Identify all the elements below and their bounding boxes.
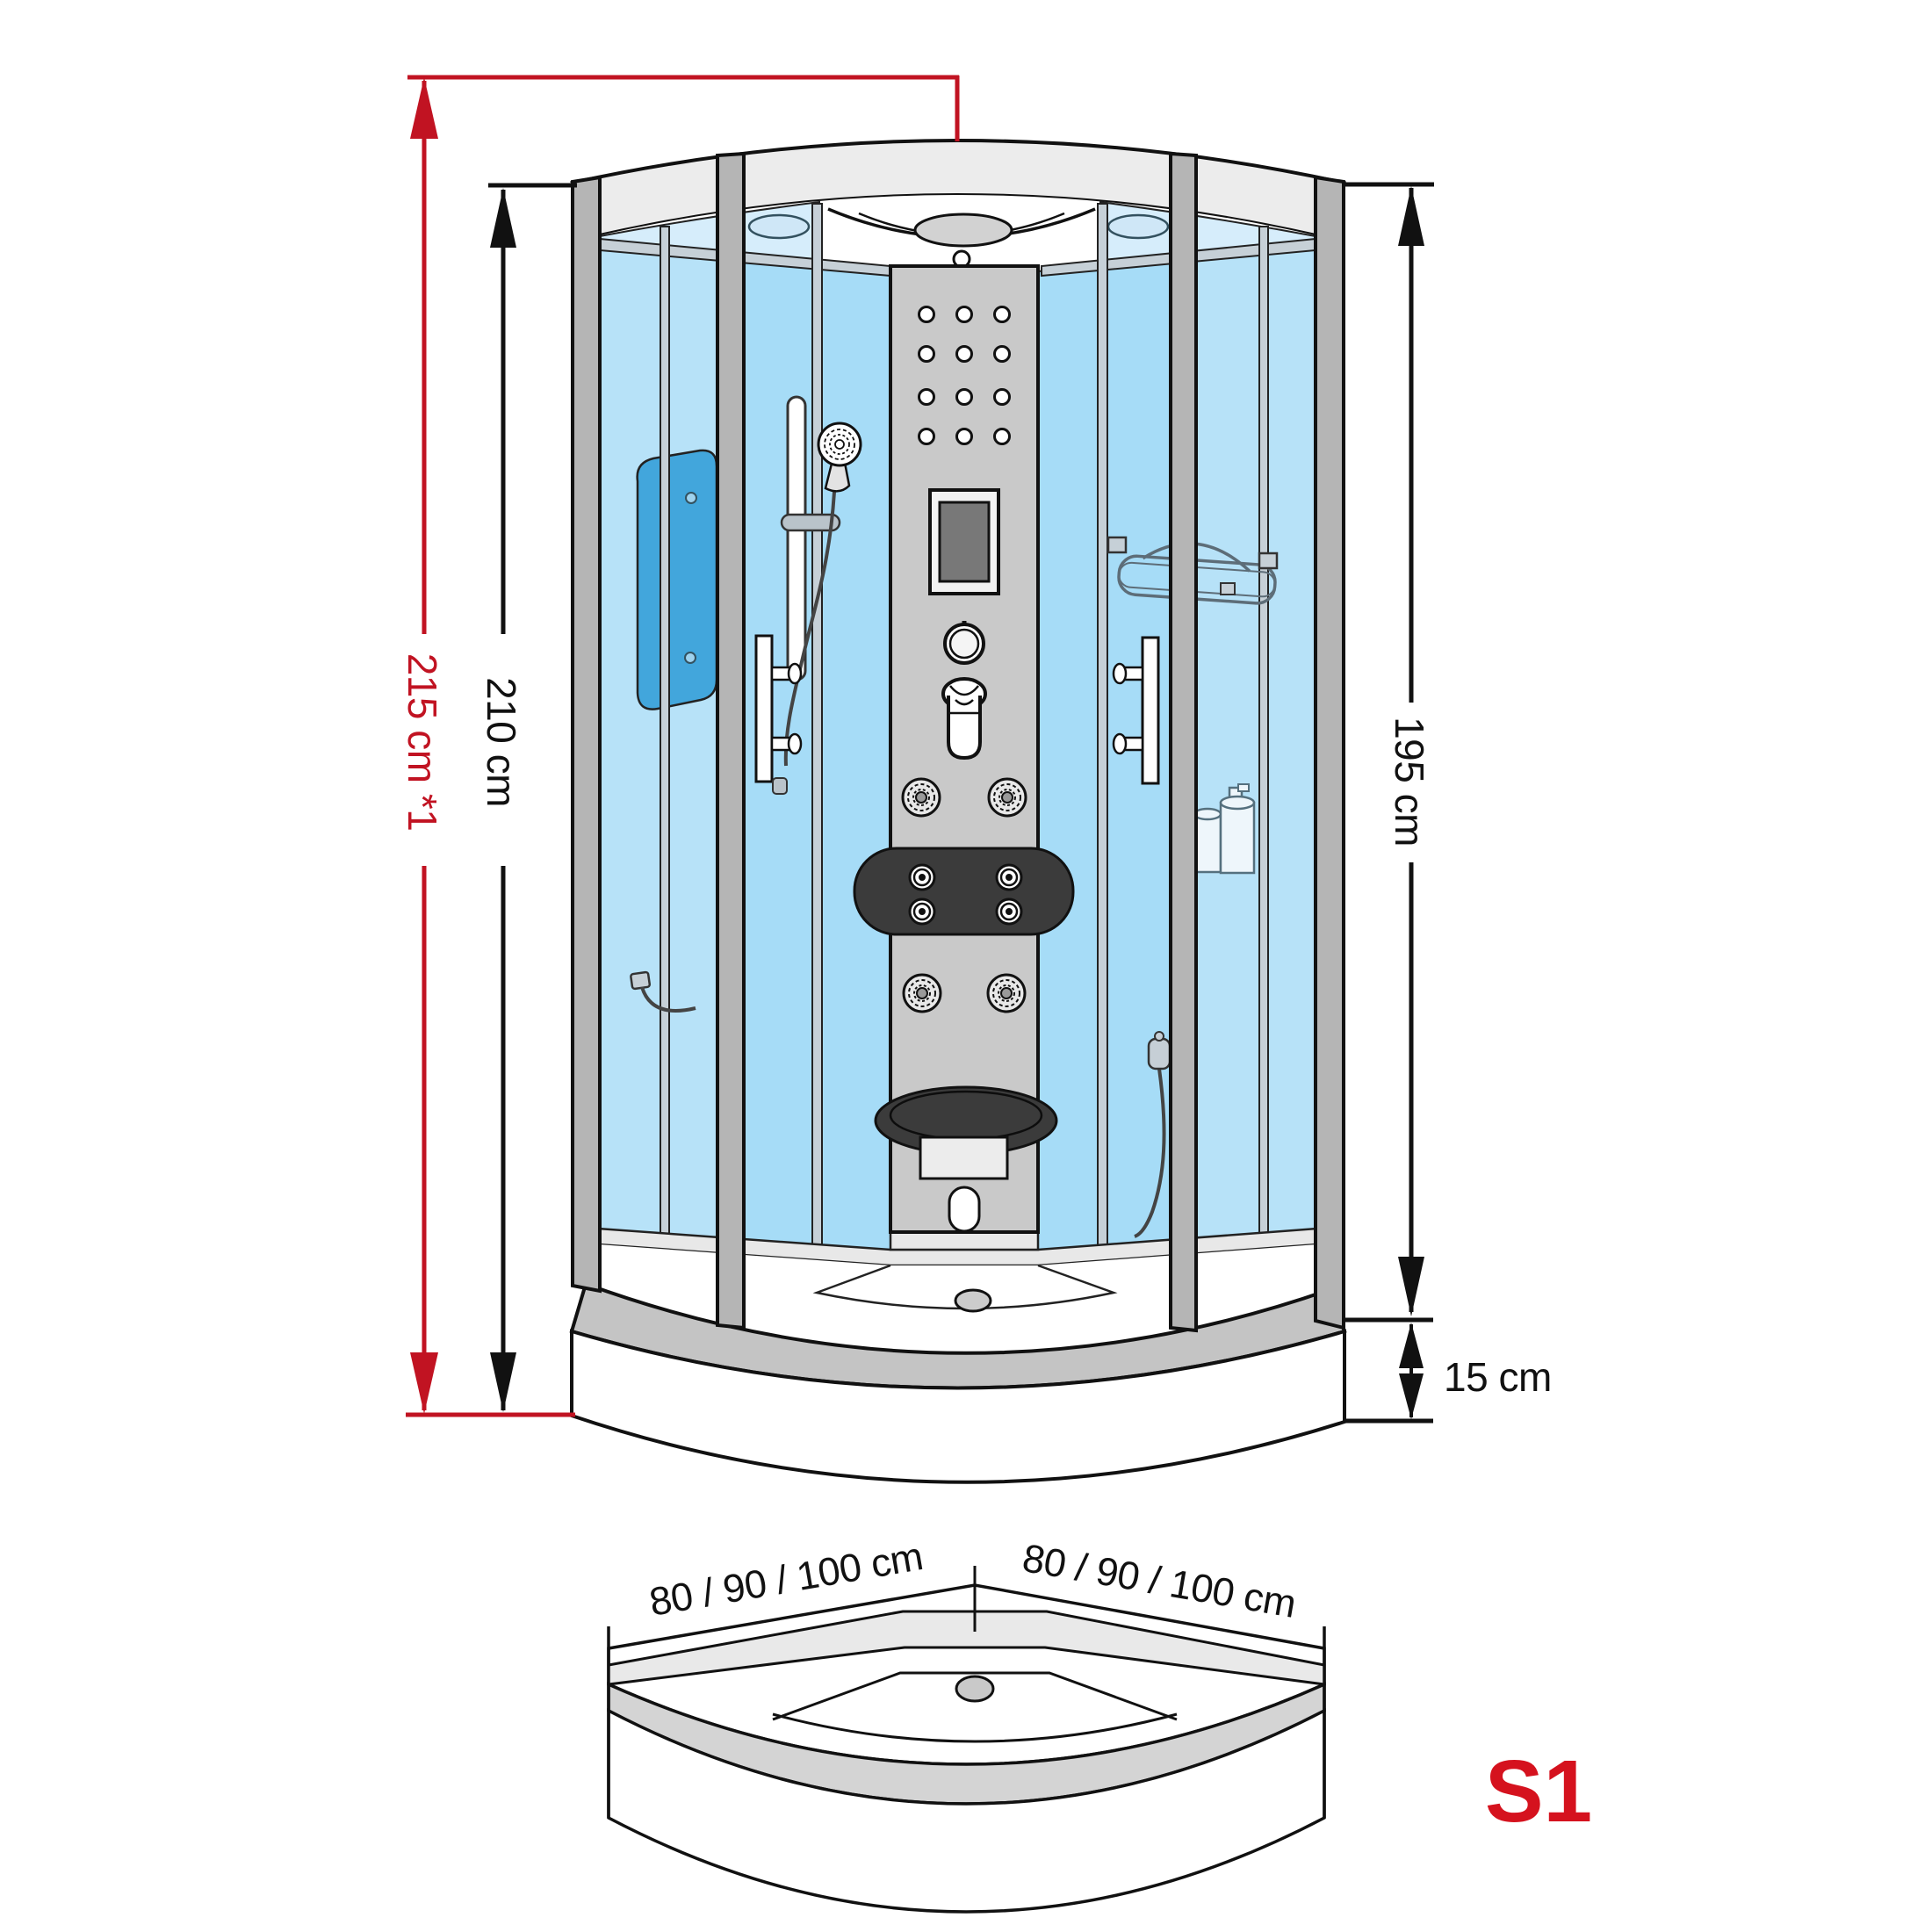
mirror-screw-bottom	[685, 652, 696, 663]
hose-hook	[773, 778, 787, 794]
label-total-height: 215 cm *1	[400, 653, 445, 832]
basket-mount-right	[1259, 553, 1277, 568]
drain	[955, 1290, 991, 1311]
display-screen	[930, 490, 998, 594]
panel-base-step	[890, 1232, 1038, 1250]
spray-head	[1149, 1039, 1170, 1069]
mirror	[638, 451, 717, 710]
mirror-screw-top	[686, 493, 696, 503]
massage-jet	[904, 975, 941, 1012]
mixer-lever	[943, 679, 985, 758]
footrest	[949, 1187, 979, 1231]
tray-drain	[956, 1676, 993, 1701]
right-frame-pillar	[1316, 177, 1344, 1328]
left-frame-pillar	[573, 177, 600, 1291]
massage-jet	[903, 779, 940, 816]
vent-right	[1108, 215, 1168, 238]
glass-divider-1	[660, 227, 669, 1323]
diagram-canvas: 215 cm *1 210 cm 195 cm 15 cm	[0, 0, 1932, 1932]
vent-left	[749, 215, 809, 238]
dimension-inner-height: 195 cm	[1342, 184, 1434, 1316]
shower-tray-diagram: 80 / 90 / 100 cm 80 / 90 / 100 cm	[609, 1533, 1324, 1912]
door-frame-right	[1171, 154, 1196, 1330]
basket-mount-left	[1108, 537, 1126, 552]
dimension-tray-height: 15 cm	[1344, 1320, 1552, 1421]
shower-cabin-illustration	[572, 141, 1344, 1482]
door-frame-left	[717, 154, 744, 1328]
dimension-cabin-height: 210 cm	[479, 185, 577, 1412]
label-inner-height: 195 cm	[1387, 717, 1432, 847]
glass-panel-front-left	[587, 246, 717, 1324]
seat-pedestal	[920, 1137, 1007, 1179]
label-tray-height: 15 cm	[1444, 1354, 1552, 1400]
glass-divider-3	[1098, 204, 1107, 1262]
model-label: S1	[1485, 1742, 1592, 1841]
glass-divider-2	[812, 204, 822, 1262]
massage-jet	[989, 779, 1026, 816]
glass-divider-4	[1259, 227, 1268, 1324]
headrest	[854, 848, 1073, 934]
shower-cabin-dimension-diagram: 215 cm *1 210 cm 195 cm 15 cm	[0, 0, 1932, 1932]
basket-clip	[1221, 583, 1235, 595]
massage-jet	[988, 975, 1025, 1012]
label-cabin-height: 210 cm	[479, 677, 524, 807]
slide-rail	[788, 397, 805, 680]
